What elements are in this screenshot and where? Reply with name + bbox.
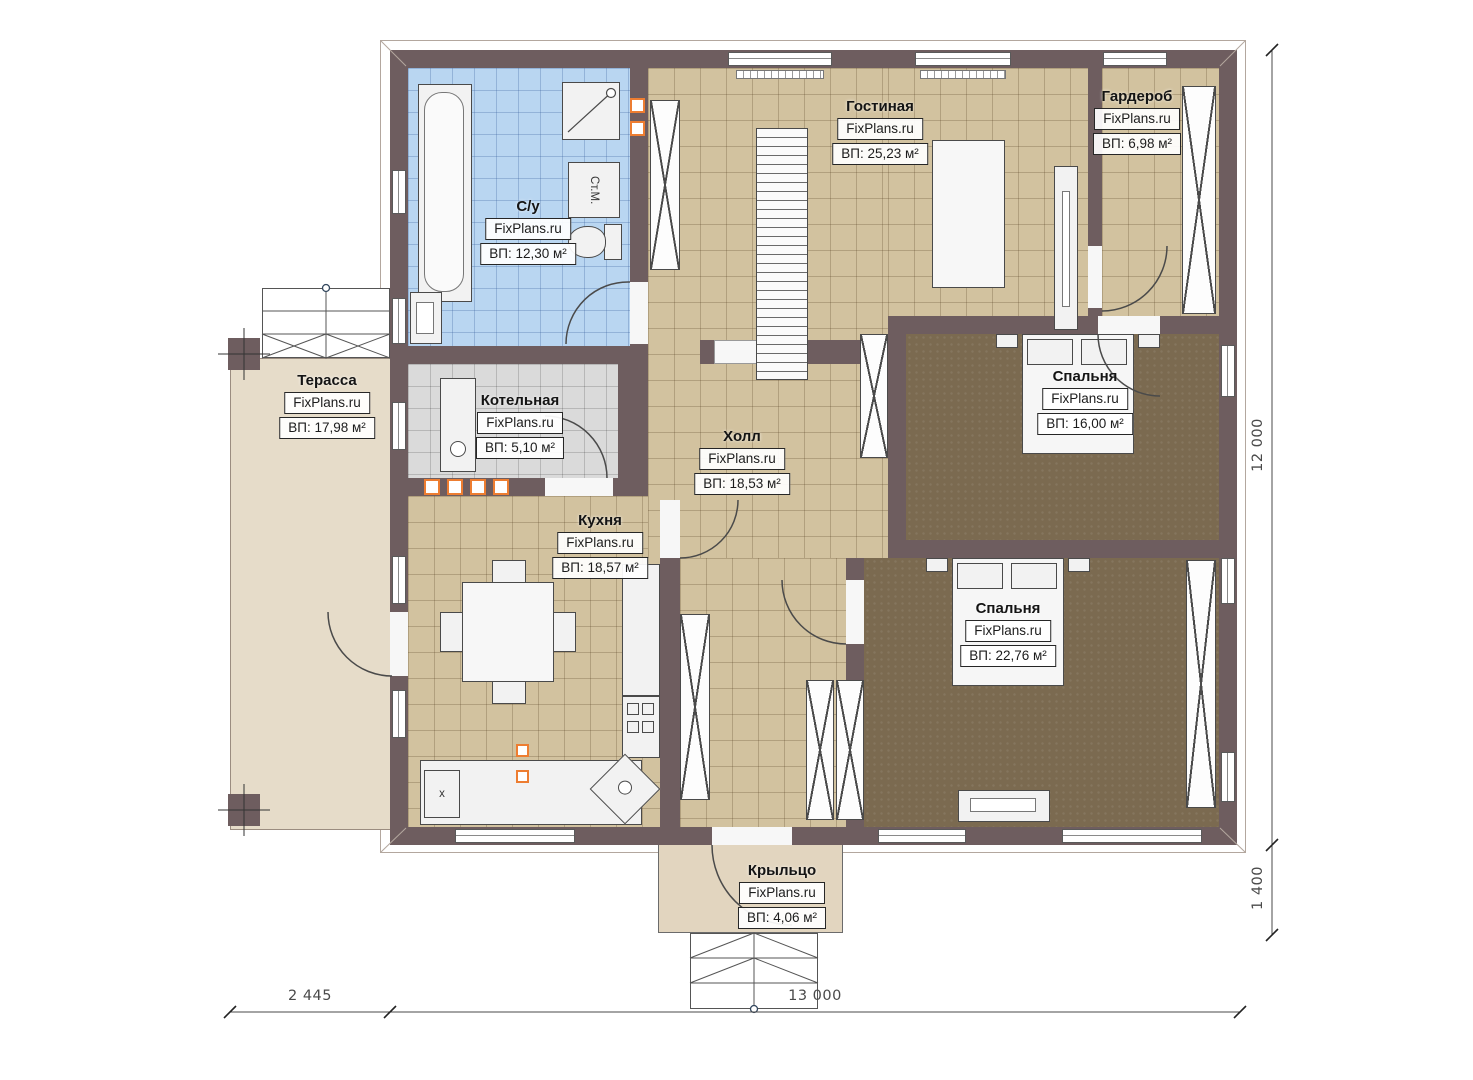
bedroom2-closet <box>1186 560 1216 808</box>
bedroom1-nightstand-left <box>996 334 1018 348</box>
stove-burner-2 <box>642 703 654 715</box>
hall-closet-1 <box>680 614 710 800</box>
room-label-porch: Крыльцо FixPlans.ru ВП: 4,06 м² <box>738 862 826 929</box>
marker-kitchen-1 <box>516 744 529 757</box>
marker-boiler-wall-1 <box>424 479 440 495</box>
radiator-living-2 <box>920 70 1006 79</box>
marker-kitchen-2 <box>516 770 529 783</box>
dim-terrace-width: 2 445 <box>268 988 352 1004</box>
door-gap-kitchen <box>660 500 680 558</box>
room-name: Спальня <box>976 600 1041 617</box>
watermark-box: FixPlans.ru <box>965 620 1051 642</box>
room-name: Гостиная <box>846 98 914 115</box>
hall-closet-2 <box>806 680 834 820</box>
marker-boiler-wall-4 <box>493 479 509 495</box>
window-bedroom2-bottom-1 <box>878 829 966 843</box>
window-living-2 <box>915 52 1011 66</box>
boiler-unit <box>440 378 476 472</box>
marker-shower-wall-1 <box>630 98 645 113</box>
window-bathroom-left-2 <box>392 298 406 344</box>
marker-shower-wall-2 <box>630 121 645 136</box>
window-boiler-left <box>392 402 406 450</box>
window-kitchen-left-1 <box>392 556 406 604</box>
watermark-box: FixPlans.ru <box>699 448 785 470</box>
bedroom2-dresser-inner <box>970 798 1036 812</box>
room-label-living: Гостиная FixPlans.ru ВП: 25,23 м² <box>832 98 928 165</box>
terrace-post-top <box>228 338 260 370</box>
area-box: ВП: 6,98 м² <box>1093 133 1181 155</box>
shower <box>562 82 620 140</box>
kitchen-sink-drain <box>615 778 635 798</box>
washing-machine-label: Ст.М. <box>569 163 619 217</box>
terrace-stairs <box>262 288 390 358</box>
room-name: Котельная <box>481 392 560 409</box>
watermark-box: FixPlans.ru <box>1042 388 1128 410</box>
kitchen-chair-right <box>552 612 576 652</box>
window-living-1 <box>728 52 832 66</box>
radiator-living-1 <box>736 70 824 79</box>
living-shelving <box>756 128 808 380</box>
watermark-box: FixPlans.ru <box>1094 108 1180 130</box>
dim-porch-depth: 1 400 <box>1250 843 1266 933</box>
room-label-terrace: Терасса FixPlans.ru ВП: 17,98 м² <box>279 372 375 439</box>
area-box: ВП: 22,76 м² <box>960 645 1056 667</box>
area-box: ВП: 5,10 м² <box>476 437 564 459</box>
watermark-box: FixPlans.ru <box>739 882 825 904</box>
watermark-box: FixPlans.ru <box>477 412 563 434</box>
room-label-boiler: Котельная FixPlans.ru ВП: 5,10 м² <box>476 392 564 459</box>
bedroom1-pillow-left <box>1027 339 1073 365</box>
terrace-post-bottom <box>228 794 260 826</box>
bedroom2-nightstand-left <box>926 558 948 572</box>
room-name: С/у <box>516 198 539 215</box>
kitchen-island-counter <box>622 564 660 696</box>
room-name: Гардероб <box>1102 88 1173 105</box>
door-gap-boiler <box>545 478 613 496</box>
stove-burner-3 <box>627 721 639 733</box>
dim-house-depth: 12 000 <box>1250 400 1266 490</box>
window-bedroom1-right <box>1221 345 1235 397</box>
tv-unit <box>1054 166 1078 330</box>
window-bedroom2-right-1 <box>1221 558 1235 604</box>
area-box: ВП: 16,00 м² <box>1037 413 1133 435</box>
room-name: Холл <box>723 428 761 445</box>
bathroom-sink-basin <box>416 302 434 334</box>
kitchen-unit-x-label: x <box>425 771 459 817</box>
room-name: Крыльцо <box>748 862 816 879</box>
kitchen-chair-top <box>492 560 526 584</box>
area-box: ВП: 18,53 м² <box>694 473 790 495</box>
marker-boiler-wall-3 <box>470 479 486 495</box>
watermark-box: FixPlans.ru <box>837 118 923 140</box>
door-gap-bedroom2 <box>846 580 864 644</box>
room-label-bedroom-2: Спальня FixPlans.ru ВП: 22,76 м² <box>960 600 1056 667</box>
floor-plan-canvas: Ст.М. <box>0 0 1473 1080</box>
passage-stub-left <box>700 340 714 364</box>
kitchen-table <box>462 582 554 682</box>
bedroom1-nightstand-right <box>1138 334 1160 348</box>
watermark-box: FixPlans.ru <box>284 392 370 414</box>
watermark-box: FixPlans.ru <box>557 532 643 554</box>
room-label-kitchen: Кухня FixPlans.ru ВП: 18,57 м² <box>552 512 648 579</box>
bedroom1-pillow-right <box>1081 339 1127 365</box>
door-gap-bathroom <box>630 282 648 344</box>
room-label-hall: Холл FixPlans.ru ВП: 18,53 м² <box>694 428 790 495</box>
kitchen-chair-bottom <box>492 680 526 704</box>
stove-burner-1 <box>627 703 639 715</box>
stove-burner-4 <box>642 721 654 733</box>
dim-house-width: 13 000 <box>770 988 860 1004</box>
bedroom2-nightstand-right <box>1068 558 1090 572</box>
area-box: ВП: 25,23 м² <box>832 143 928 165</box>
door-gap-terrace <box>390 612 408 676</box>
area-box: ВП: 4,06 м² <box>738 907 826 929</box>
area-box: ВП: 17,98 м² <box>279 417 375 439</box>
window-wardrobe <box>1103 52 1167 66</box>
room-label-bathroom: С/у FixPlans.ru ВП: 12,30 м² <box>480 198 576 265</box>
room-label-bedroom-1: Спальня FixPlans.ru ВП: 16,00 м² <box>1037 368 1133 435</box>
bathtub <box>418 84 472 302</box>
kitchen-unit-x: x <box>424 770 460 818</box>
window-bedroom2-right-2 <box>1221 752 1235 802</box>
toilet-tank <box>604 224 622 260</box>
bedroom2-pillow-left <box>957 563 1003 589</box>
area-box: ВП: 12,30 м² <box>480 243 576 265</box>
kitchen-stove <box>622 696 660 758</box>
door-gap-bedroom1 <box>1098 316 1160 334</box>
bathroom-sink <box>410 292 442 344</box>
area-box: ВП: 18,57 м² <box>552 557 648 579</box>
bedroom2-pillow-right <box>1011 563 1057 589</box>
window-bedroom2-bottom-2 <box>1062 829 1202 843</box>
window-kitchen-bottom <box>455 829 575 843</box>
door-gap-wardrobe <box>1088 246 1102 308</box>
living-table <box>932 140 1005 288</box>
door-gap-porch <box>712 827 792 845</box>
room-name: Спальня <box>1053 368 1118 385</box>
washing-machine: Ст.М. <box>568 162 620 218</box>
bathtub-inner <box>424 92 464 292</box>
kitchen-chair-left <box>440 612 464 652</box>
room-label-wardrobe: Гардероб FixPlans.ru ВП: 6,98 м² <box>1093 88 1181 155</box>
room-name: Кухня <box>578 512 622 529</box>
window-kitchen-left-2 <box>392 690 406 738</box>
bedroom2-dresser <box>958 790 1050 822</box>
hall-closet-4 <box>860 334 888 458</box>
watermark-box: FixPlans.ru <box>485 218 571 240</box>
boiler-dial <box>450 441 466 457</box>
living-closet <box>650 100 680 270</box>
marker-boiler-wall-2 <box>447 479 463 495</box>
tv-unit-inner <box>1062 191 1070 307</box>
window-bathroom-left-1 <box>392 170 406 214</box>
hall-closet-3 <box>836 680 864 820</box>
wardrobe-closet <box>1182 86 1216 314</box>
room-name: Терасса <box>297 372 356 389</box>
